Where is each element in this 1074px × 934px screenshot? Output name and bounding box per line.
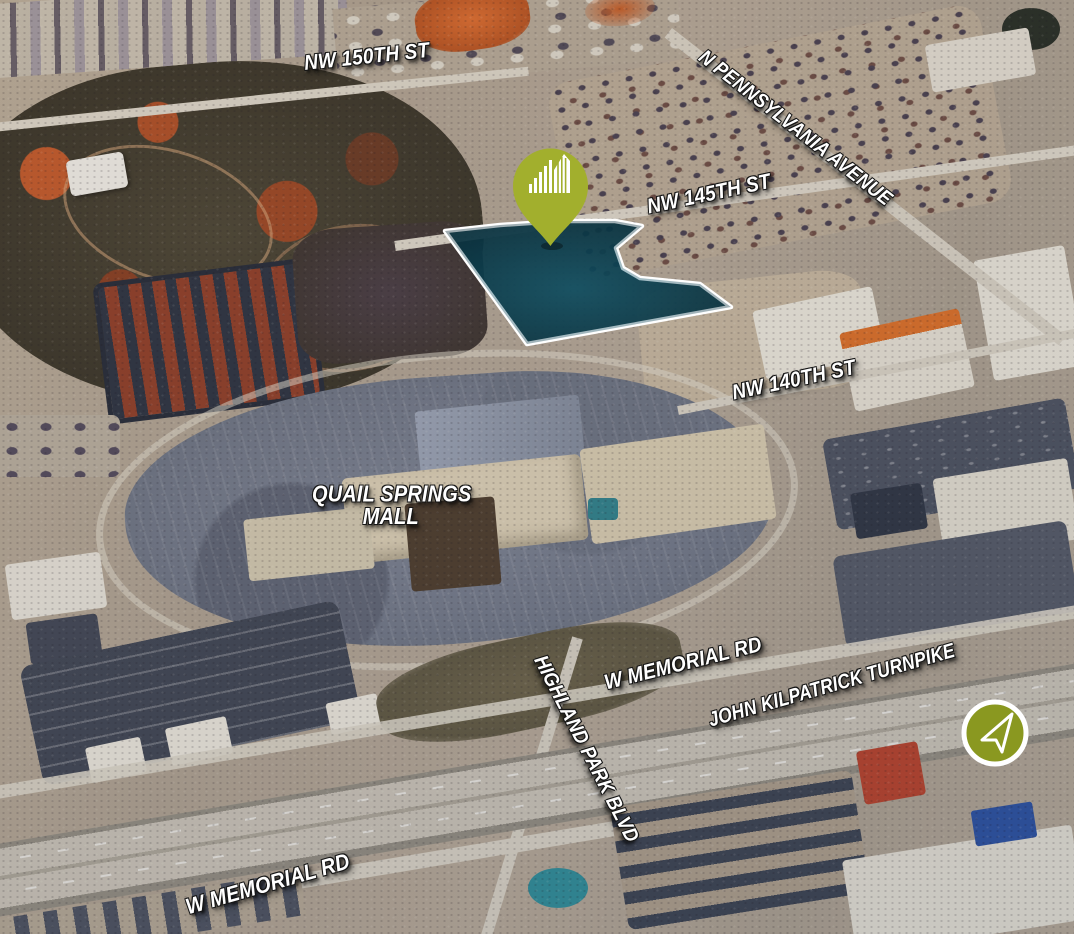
mall-label-line1: QUAIL SPRINGS [312, 483, 470, 506]
color-tint [0, 0, 1074, 934]
aerial-map: NW 150TH ST N PENNSYLVANIA AVENUE NW 145… [0, 0, 1074, 934]
place-label-quail-springs-mall: QUAIL SPRINGS MALL [312, 483, 470, 529]
mall-label-line2: MALL [312, 506, 470, 529]
